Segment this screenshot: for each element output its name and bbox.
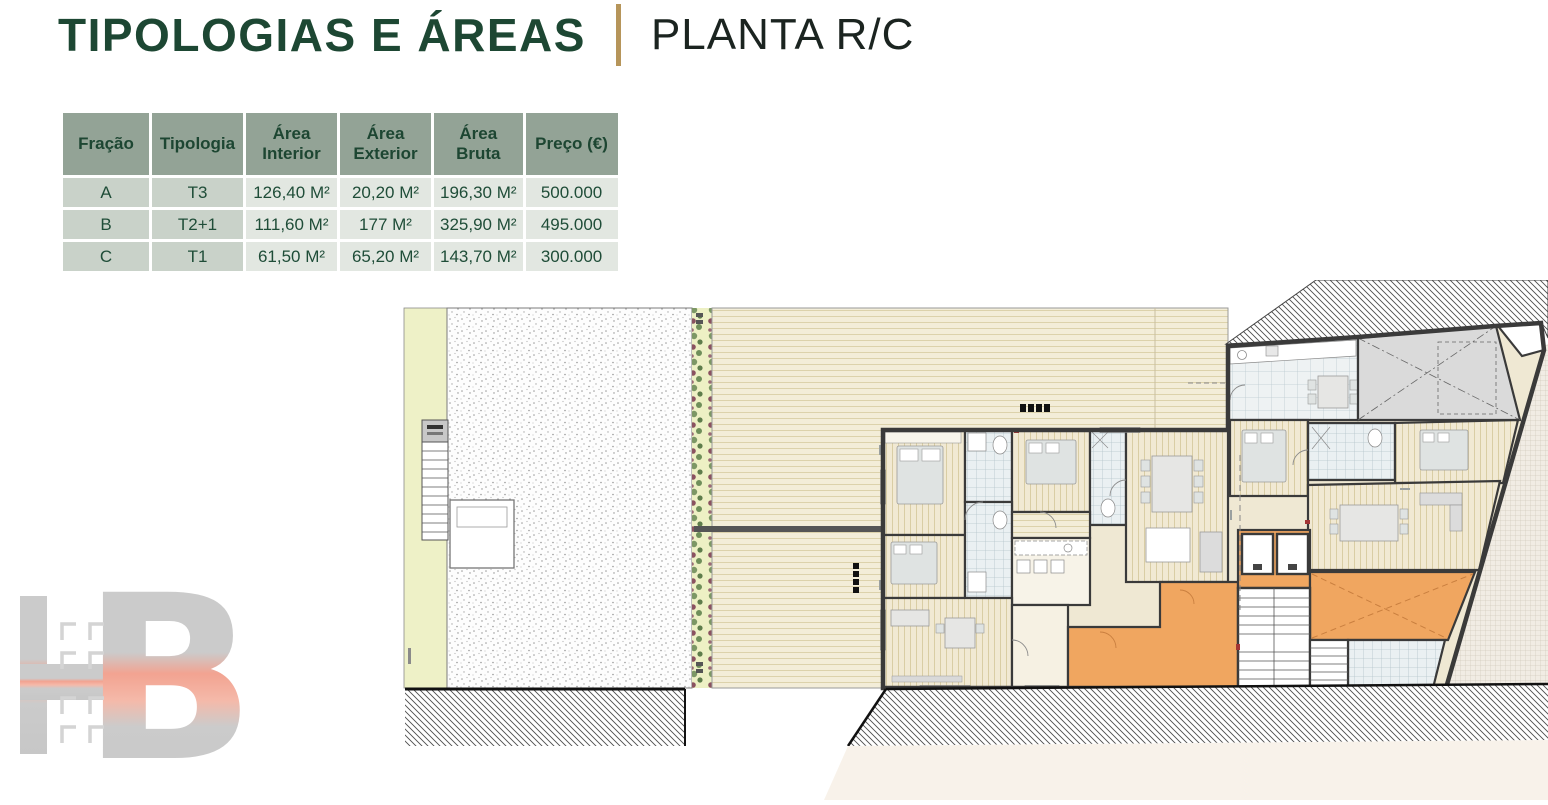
cell-area-bruta: 196,30 M² <box>434 178 523 207</box>
kitchen <box>1012 538 1090 605</box>
living-room <box>1308 481 1500 570</box>
cell-area-bruta: 143,70 M² <box>434 242 523 271</box>
living-dining-room <box>1126 430 1228 582</box>
header-area-exterior: Área Exterior <box>340 113 431 175</box>
patio <box>1348 640 1445 688</box>
floor-plan <box>400 280 1548 800</box>
bathroom <box>1090 430 1126 525</box>
ramp <box>1310 640 1348 688</box>
bathroom <box>1308 423 1395 480</box>
cell-preco: 495.000 <box>526 210 618 239</box>
areas-table: Fração Tipologia Área Interior Área Exte… <box>60 110 621 274</box>
cell-area-interior: 126,40 M² <box>246 178 337 207</box>
cell-preco: 500.000 <box>526 178 618 207</box>
hb-monogram: B <box>20 572 256 790</box>
hb-logo: B <box>4 572 256 790</box>
street-area <box>824 740 1548 800</box>
kitchen-dining <box>1228 338 1358 420</box>
bedroom <box>1012 430 1090 512</box>
garage <box>1358 326 1520 420</box>
header-tipologia: Tipologia <box>152 113 243 175</box>
white-platform <box>450 500 514 568</box>
cell-area-interior: 111,60 M² <box>246 210 337 239</box>
cell-area-exterior: 65,20 M² <box>340 242 431 271</box>
cell-tipologia: T1 <box>152 242 243 271</box>
corridor <box>1012 605 1068 688</box>
svg-text:B: B <box>82 572 256 790</box>
sidewalk-hatch-right <box>848 684 1548 746</box>
bedroom <box>1230 420 1308 496</box>
page: { "header": { "title": "TIPOLOGIAS E ÁRE… <box>0 0 1548 800</box>
cell-fracao: C <box>63 242 149 271</box>
gravel-area <box>447 308 692 688</box>
cell-fracao: A <box>63 178 149 207</box>
living-room <box>883 598 1012 688</box>
cell-area-interior: 61,50 M² <box>246 242 337 271</box>
cell-tipologia: T3 <box>152 178 243 207</box>
vegetation-strip <box>692 308 712 688</box>
cell-area-exterior: 20,20 M² <box>340 178 431 207</box>
header-preco: Preço (€) <box>526 113 618 175</box>
exterior-stair <box>422 420 448 540</box>
bedroom <box>883 430 965 535</box>
header-area-bruta: Área Bruta <box>434 113 523 175</box>
page-header: TIPOLOGIAS E ÁREAS PLANTA R/C <box>58 4 914 66</box>
bedroom <box>1395 420 1518 483</box>
header-fracao: Fração <box>63 113 149 175</box>
cell-area-bruta: 325,90 M² <box>434 210 523 239</box>
cell-fracao: B <box>63 210 149 239</box>
table-header-row: Fração Tipologia Área Interior Área Exte… <box>63 113 618 175</box>
plan-title: PLANTA R/C <box>651 10 914 60</box>
header-area-interior: Área Interior <box>246 113 337 175</box>
table-row: B T2+1 111,60 M² 177 M² 325,90 M² 495.00… <box>63 210 618 239</box>
table-row: C T1 61,50 M² 65,20 M² 143,70 M² 300.000 <box>63 242 618 271</box>
cell-tipologia: T2+1 <box>152 210 243 239</box>
table-row: A T3 126,40 M² 20,20 M² 196,30 M² 500.00… <box>63 178 618 207</box>
stairwell <box>1238 588 1310 688</box>
cell-area-exterior: 177 M² <box>340 210 431 239</box>
sidewalk-hatch-left <box>405 689 685 746</box>
bathroom <box>965 430 1012 502</box>
bathroom <box>965 502 1012 598</box>
bedroom <box>883 535 965 598</box>
cell-preco: 300.000 <box>526 242 618 271</box>
page-title: TIPOLOGIAS E ÁREAS <box>58 8 586 62</box>
gold-divider <box>616 4 621 66</box>
